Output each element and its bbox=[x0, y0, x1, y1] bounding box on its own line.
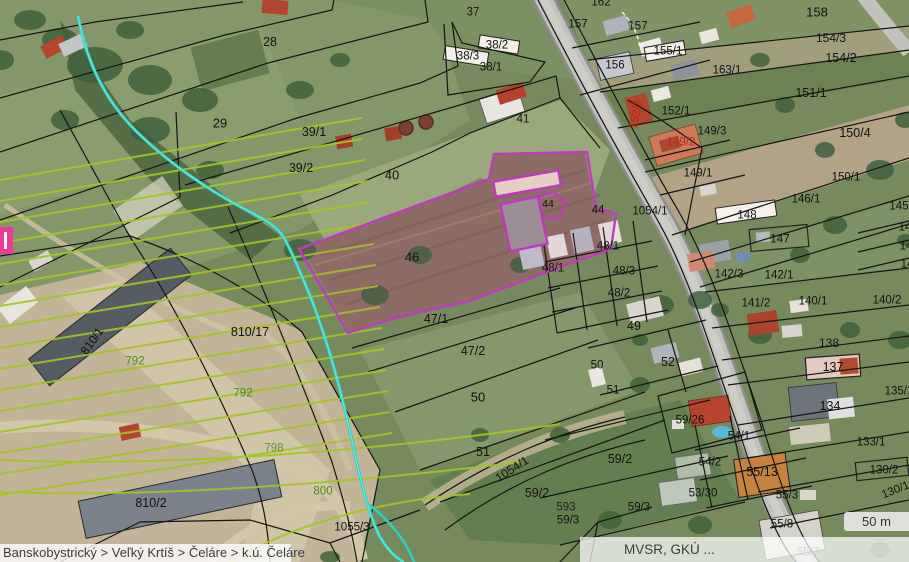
attribution-text: MVSR, GKÚ ... bbox=[624, 542, 715, 557]
map-marker-glyph bbox=[4, 232, 7, 249]
scale-bar-label: 50 m bbox=[862, 514, 891, 529]
attribution-bar[interactable]: MVSR, GKÚ ... bbox=[580, 537, 909, 562]
map-marker[interactable] bbox=[0, 227, 13, 254]
scale-bar: 50 m bbox=[844, 512, 909, 531]
breadcrumb-text: Banskobystrický > Veľký Krtíš > Čeláre >… bbox=[3, 545, 305, 560]
map-viewer: 372816215715715838/238/338/1156155/1163/… bbox=[0, 0, 909, 562]
map-canvas[interactable] bbox=[0, 0, 909, 562]
breadcrumb[interactable]: Banskobystrický > Veľký Krtíš > Čeláre >… bbox=[0, 544, 291, 562]
